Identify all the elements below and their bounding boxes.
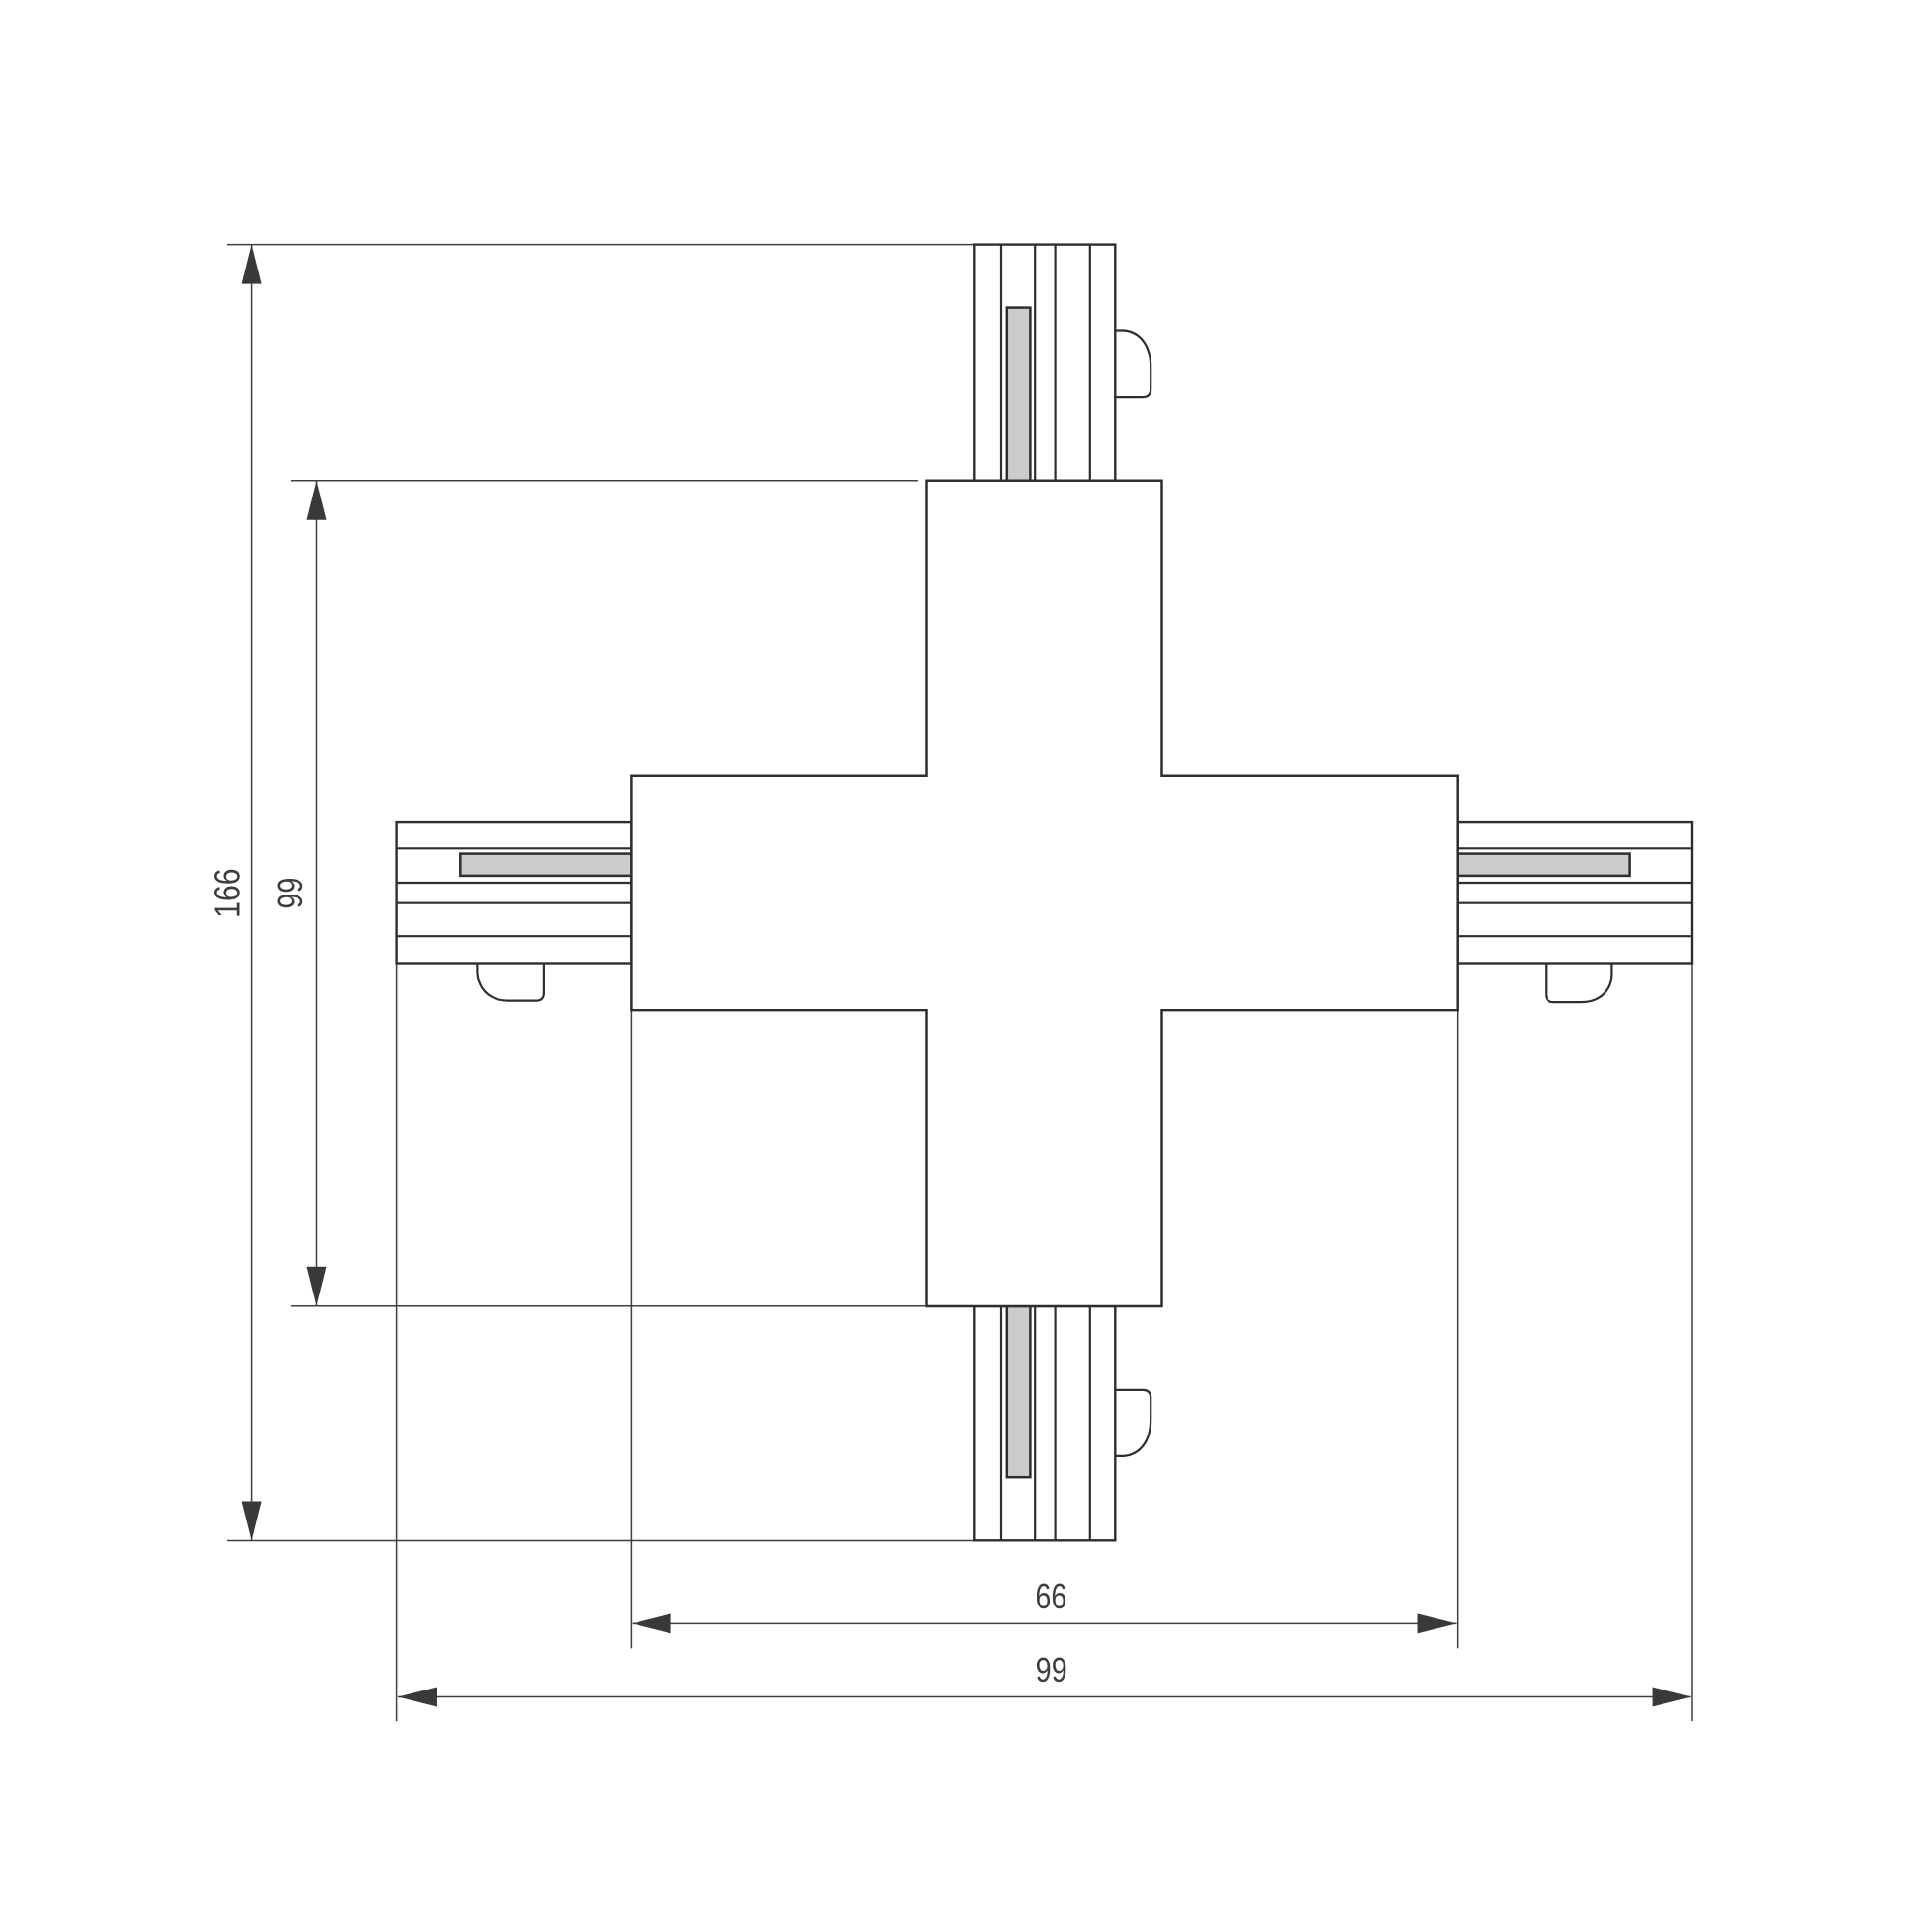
svg-text:99: 99 xyxy=(270,878,310,909)
svg-text:66: 66 xyxy=(1036,1577,1066,1616)
svg-text:99: 99 xyxy=(1037,1650,1067,1690)
svg-text:166: 166 xyxy=(209,868,247,917)
